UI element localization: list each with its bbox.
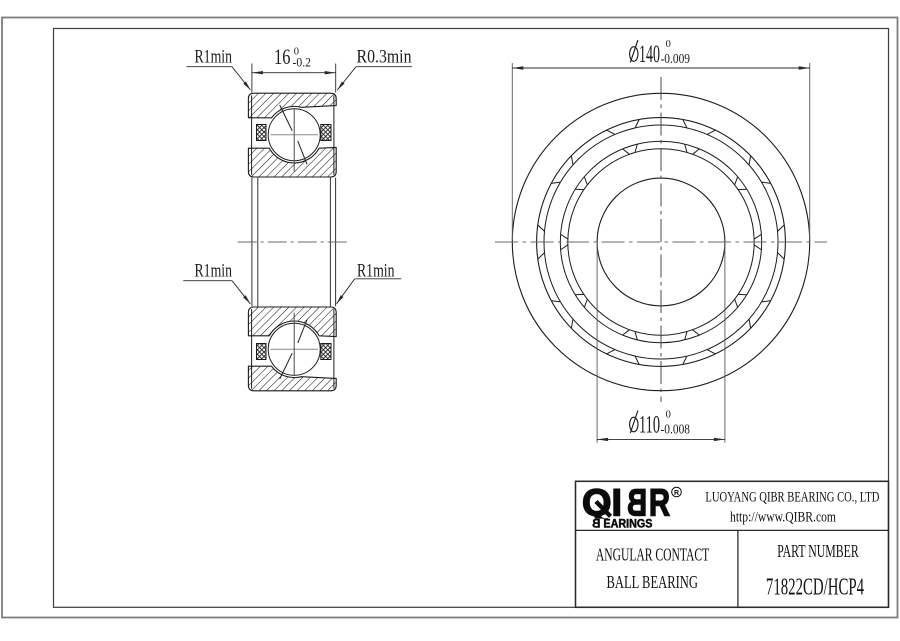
svg-text:ANGULAR CONTACT: ANGULAR CONTACT [596,545,709,565]
svg-text:-0.008: -0.008 [661,421,691,436]
svg-text:-0.2: -0.2 [293,56,312,70]
svg-text:R0.3min: R0.3min [357,47,412,68]
svg-text:LUOYANG QIBR BEARING CO., LTD: LUOYANG QIBR BEARING CO., LTD [705,489,879,505]
svg-text:-0.009: -0.009 [661,51,691,66]
svg-text:0: 0 [666,410,671,421]
svg-text:B: B [592,518,600,530]
svg-text:http://www.QIBR.com: http://www.QIBR.com [730,509,836,525]
svg-text:BALL BEARING: BALL BEARING [607,572,699,592]
svg-text:0: 0 [666,39,671,50]
svg-text:EARINGS: EARINGS [603,518,652,530]
svg-text:110: 110 [639,411,660,438]
svg-text:R1min: R1min [195,261,233,282]
svg-text:16: 16 [274,44,291,69]
svg-text:PART NUMBER: PART NUMBER [777,541,859,561]
svg-text:R1min: R1min [195,47,233,68]
svg-text:140: 140 [639,41,660,68]
svg-text:R: R [674,490,679,497]
svg-text:71822CD/HCP4: 71822CD/HCP4 [766,575,864,601]
